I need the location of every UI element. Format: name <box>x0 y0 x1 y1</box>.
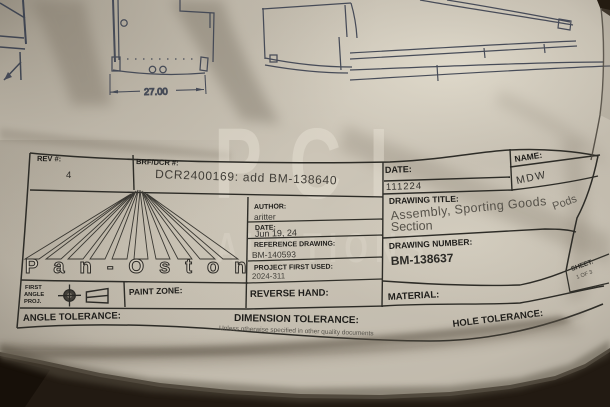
svg-text:27.00: 27.00 <box>144 87 168 98</box>
svg-text:BRF/DCR #:: BRF/DCR #: <box>136 157 179 167</box>
svg-text:REVERSE HAND:: REVERSE HAND: <box>250 288 329 300</box>
svg-text:REFERENCE DRAWING:: REFERENCE DRAWING: <box>254 241 335 249</box>
svg-text:aritter: aritter <box>254 212 276 222</box>
svg-text:FIRST: FIRST <box>25 285 42 291</box>
svg-text:4: 4 <box>66 170 71 181</box>
svg-text:PROJ.: PROJ. <box>24 299 42 305</box>
svg-text:REV #:: REV #: <box>37 154 61 163</box>
svg-text:AUTHOR:: AUTHOR: <box>254 203 286 211</box>
svg-text:Section: Section <box>391 219 433 234</box>
svg-text:PROJECT FIRST USED:: PROJECT FIRST USED: <box>254 264 333 272</box>
svg-text:2024-311: 2024-311 <box>252 271 286 281</box>
svg-text:PAINT ZONE:: PAINT ZONE: <box>129 285 183 297</box>
svg-text:DIMENSION TOLERANCE:: DIMENSION TOLERANCE: <box>234 313 359 326</box>
svg-text:DATE:: DATE: <box>385 164 412 175</box>
svg-text:BM-140593: BM-140593 <box>252 249 296 260</box>
svg-text:111224: 111224 <box>386 181 423 193</box>
svg-text:ANGLE: ANGLE <box>24 292 44 298</box>
svg-text:Pan-Oston: Pan-Oston <box>25 256 249 278</box>
